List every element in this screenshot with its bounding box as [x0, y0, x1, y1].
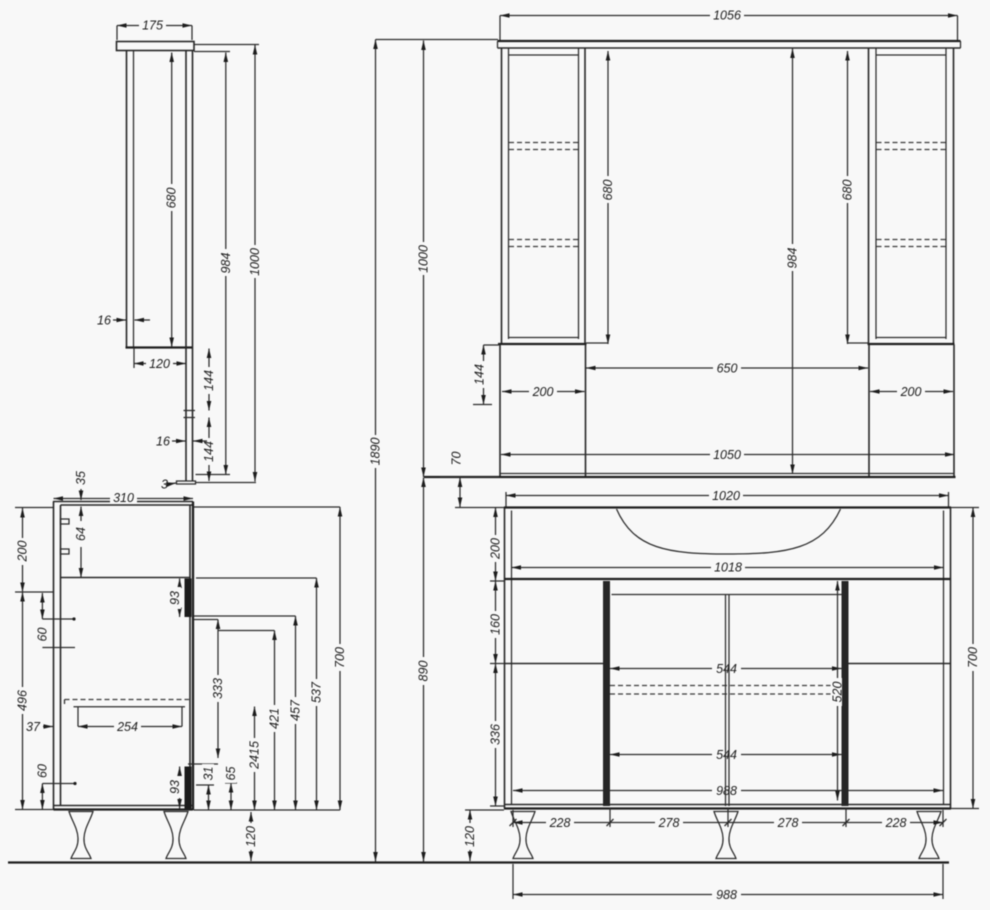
svg-text:120: 120 [463, 826, 477, 847]
svg-text:988: 988 [716, 784, 737, 798]
svg-text:93: 93 [168, 591, 182, 605]
svg-text:310: 310 [113, 491, 134, 505]
svg-text:37: 37 [26, 720, 41, 734]
svg-text:200: 200 [489, 538, 503, 560]
svg-text:1000: 1000 [417, 245, 431, 273]
svg-text:175: 175 [142, 19, 163, 33]
svg-text:200: 200 [900, 385, 922, 399]
svg-text:228: 228 [885, 816, 907, 830]
svg-text:64: 64 [74, 527, 88, 541]
svg-text:700: 700 [333, 647, 347, 668]
svg-text:984: 984 [786, 248, 800, 269]
svg-text:144: 144 [202, 441, 216, 462]
svg-text:35: 35 [74, 471, 88, 485]
svg-text:1890: 1890 [369, 438, 383, 466]
svg-text:254: 254 [116, 720, 138, 734]
svg-text:680: 680 [165, 188, 179, 209]
svg-text:984: 984 [219, 253, 233, 274]
svg-text:496: 496 [16, 690, 30, 711]
svg-text:120: 120 [149, 357, 170, 371]
svg-text:200: 200 [532, 385, 554, 399]
svg-text:700: 700 [966, 647, 980, 668]
svg-text:544: 544 [716, 662, 737, 676]
svg-text:60: 60 [35, 628, 49, 642]
svg-text:228: 228 [549, 816, 571, 830]
svg-text:31: 31 [202, 767, 216, 781]
svg-text:2415: 2415 [248, 741, 262, 770]
svg-text:200: 200 [16, 541, 30, 563]
svg-text:650: 650 [717, 362, 738, 376]
svg-text:544: 544 [716, 748, 737, 762]
svg-text:520: 520 [831, 682, 845, 703]
svg-text:890: 890 [417, 661, 431, 682]
svg-text:144: 144 [202, 370, 216, 391]
svg-text:1018: 1018 [714, 561, 742, 575]
svg-text:1056: 1056 [713, 9, 741, 23]
svg-text:336: 336 [489, 724, 503, 745]
svg-text:120: 120 [244, 826, 258, 847]
svg-text:1020: 1020 [712, 489, 740, 503]
svg-text:333: 333 [211, 678, 225, 699]
svg-text:160: 160 [489, 614, 503, 635]
svg-text:421: 421 [268, 708, 282, 729]
svg-text:16: 16 [97, 314, 111, 328]
svg-text:3: 3 [161, 478, 168, 492]
svg-text:65: 65 [224, 767, 238, 781]
svg-text:278: 278 [658, 816, 680, 830]
svg-text:1050: 1050 [713, 448, 741, 462]
svg-text:16: 16 [156, 435, 170, 449]
svg-text:680: 680 [601, 180, 615, 201]
svg-text:144: 144 [473, 364, 487, 385]
svg-text:278: 278 [777, 816, 799, 830]
svg-text:680: 680 [841, 180, 855, 201]
svg-text:457: 457 [289, 699, 303, 721]
svg-text:60: 60 [35, 764, 49, 778]
svg-text:537: 537 [310, 681, 324, 703]
svg-text:70: 70 [450, 452, 464, 466]
svg-text:988: 988 [716, 888, 737, 902]
svg-text:93: 93 [168, 780, 182, 794]
svg-text:1000: 1000 [248, 248, 262, 276]
